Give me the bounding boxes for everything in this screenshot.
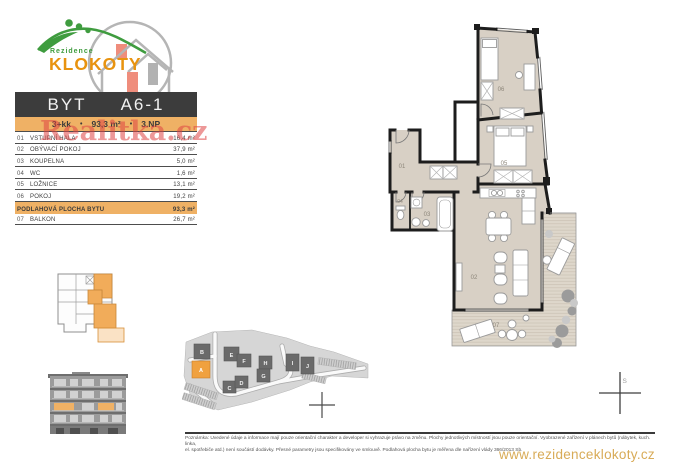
building-label: G [261,374,265,380]
building-label: H [264,361,268,367]
floor-plan: 01 02 03 04 05 06 07 [382,12,673,364]
room-label-04: 04 [397,199,403,205]
room-num: 05 [17,182,30,188]
room-name: OBÝVACÍ POKOJ [30,147,173,153]
crosshair-icon [599,372,641,414]
realitka-watermark: Realitka.cz [40,116,207,147]
total-area: 93,3 m² [173,207,195,213]
total-label: PODLAHOVÁ PLOCHA BYTU [17,207,173,213]
site-plan: B A E F H G C D I J [182,326,372,424]
table-total-row: PODLAHOVÁ PLOCHA BYTU 93,3 m² [15,202,197,214]
note-line-1: Poznámka: Uvedené údaje a informace mají… [185,436,655,448]
building-label: J [306,364,309,370]
room-num: 04 [17,171,30,177]
unit-code: A6-1 [121,95,165,115]
room-num: 03 [17,159,30,165]
room-label-01: 01 [399,164,406,170]
crosshair-icon [309,392,335,418]
unit-type-label: BYT [48,95,87,115]
brand-name-main: KLOKOTY [49,54,142,74]
north-label: S [623,378,628,385]
room-label-07: 07 [493,323,500,329]
room-name: BALKON [30,217,173,223]
room-name: WC [30,171,177,177]
table-row: 04 WC 1,6 m² [15,167,197,179]
room-num: 06 [17,194,30,200]
north-indicator: S [594,368,646,418]
room-name: POKOJ [30,194,173,200]
room-label-05: 05 [501,161,508,167]
room-num: 02 [17,147,30,153]
highlighted-balcony [98,328,124,342]
building-label: C [228,386,232,392]
building-label: B [200,350,204,356]
unit-header-bar: BYT A6-1 [15,92,197,117]
room-area: 5,0 m² [177,159,195,165]
building-label: E [230,353,234,359]
table-balcony-row: 07 BALKON 26,7 m² [15,214,197,226]
building-label: D [240,381,244,387]
room-area: 13,1 m² [173,182,195,188]
website-link[interactable]: www.rezidenceklokoty.cz [185,447,655,462]
brochure-page: Rezidence KLOKOTY BYT A6-1 3+kk • 93,3 m… [0,0,673,468]
room-label-02: 02 [471,275,478,281]
key-plan [50,268,132,346]
room-area: 1,6 m² [177,171,195,177]
building-label: A [199,368,203,374]
room-area: 37,9 m² [173,147,195,153]
room-name: KOUPELNA [30,159,177,165]
room-label-06: 06 [498,87,505,93]
room-name: LOŽNICE [30,182,173,188]
building-elevation [46,372,132,438]
room-label-03: 03 [424,212,431,218]
room-num: 01 [17,136,30,142]
room-area: 19,2 m² [173,194,195,200]
room-num: 07 [17,217,30,223]
table-row: 03 KOUPELNA 5,0 m² [15,155,197,167]
table-row: 05 LOŽNICE 13,1 m² [15,179,197,191]
table-row: 06 POKOJ 19,2 m² [15,190,197,202]
footer-divider [185,432,655,434]
room-area: 26,7 m² [173,217,195,223]
